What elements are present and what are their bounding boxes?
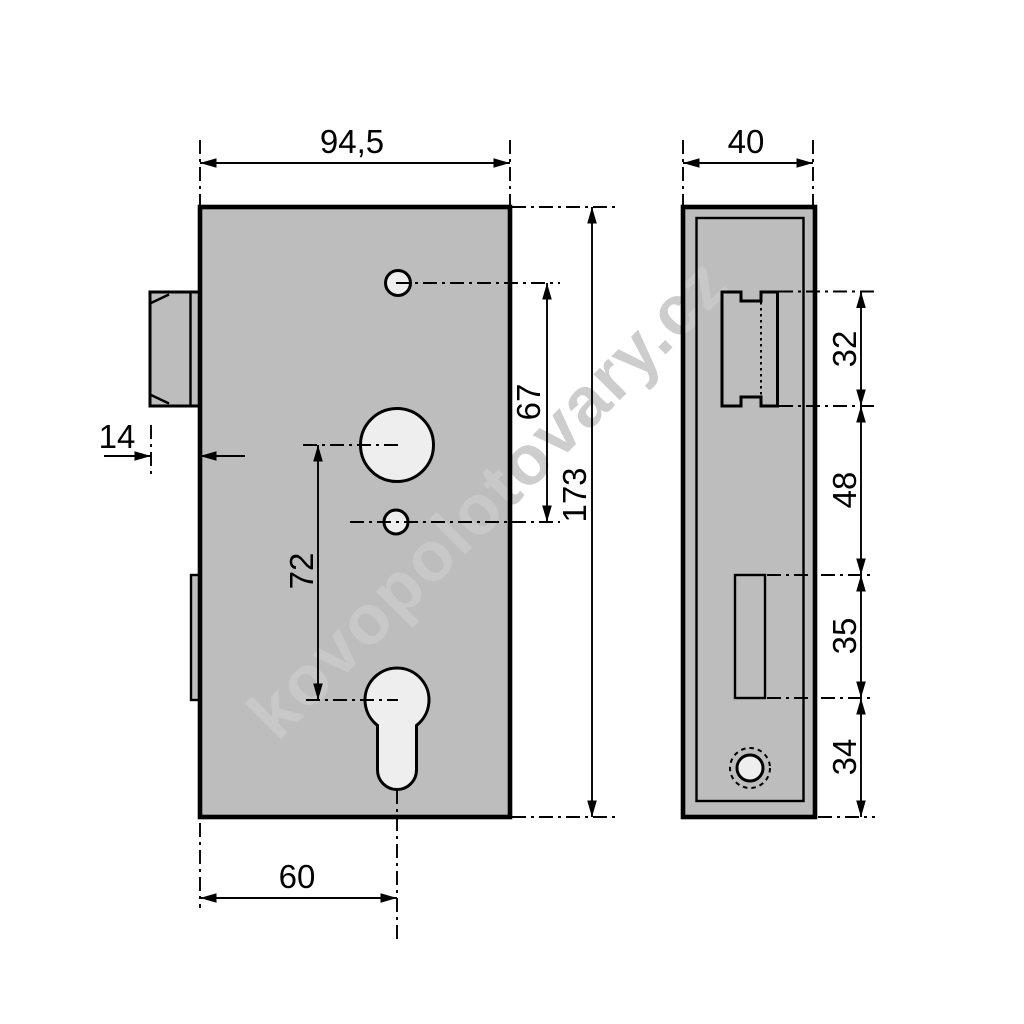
- lock-dimension-drawing: kovopolotovary.cz: [0, 0, 1024, 1024]
- technical-drawing-page: kovopolotovary.cz: [0, 0, 1024, 1024]
- dim-slot-to-bottom-label: 34: [826, 739, 863, 776]
- dim-bolt-to-slot-label: 48: [826, 472, 863, 509]
- dim-bolt-height-label: 32: [826, 331, 863, 368]
- dim-depth-label: 40: [728, 123, 765, 160]
- dim-hole-spacing-label: 67: [510, 384, 547, 421]
- dim-follower-to-cylinder-label: 72: [283, 553, 320, 590]
- dim-slot-height-label: 35: [826, 618, 863, 655]
- dim-backset-label: 60: [279, 858, 316, 895]
- dim-overall-height-label: 173: [556, 467, 593, 522]
- dim-bolt-protrusion-label: 14: [99, 418, 136, 455]
- dim-overall-width-label: 94,5: [320, 123, 384, 160]
- latch-bolt-front-fill: [150, 292, 200, 406]
